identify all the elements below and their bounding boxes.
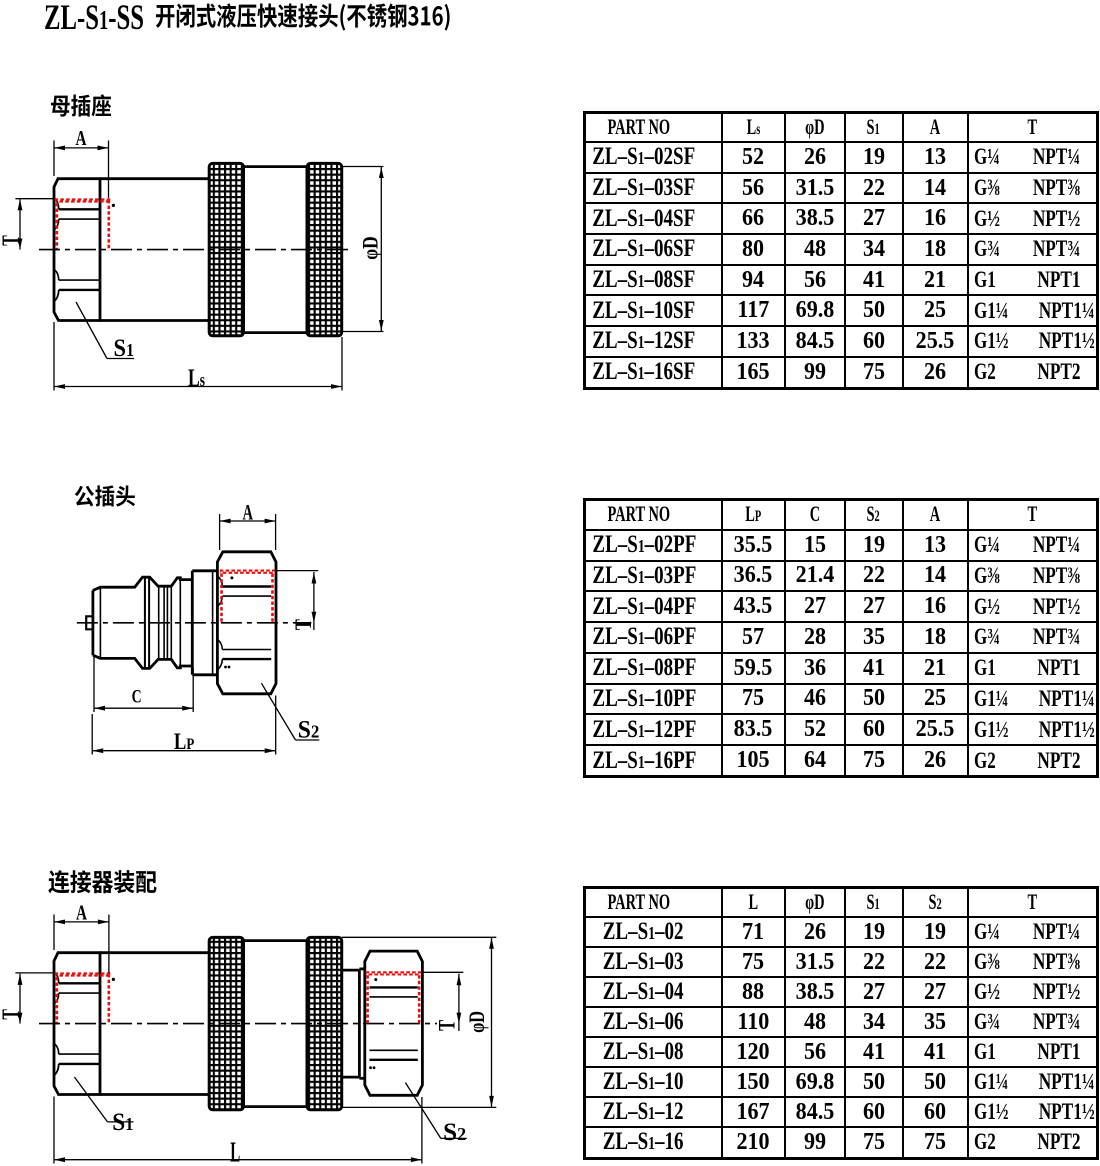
svg-text:A: A: [242, 499, 253, 524]
svg-text:S2: S2: [298, 717, 320, 744]
svg-text:T: T: [435, 1020, 460, 1031]
svg-text:A: A: [76, 126, 88, 150]
svg-text:C: C: [132, 687, 142, 708]
svg-text:L: L: [230, 1138, 240, 1166]
svg-text:Ls: Ls: [188, 365, 205, 392]
svg-text:LP: LP: [174, 729, 195, 754]
svg-text:ZL-S1-SS: ZL-S1-SS: [44, 0, 144, 37]
svg-text:φD: φD: [358, 236, 383, 260]
svg-text:φD: φD: [464, 1011, 489, 1033]
svg-text:T: T: [0, 235, 25, 246]
svg-text:S1: S1: [114, 335, 135, 362]
svg-text:A: A: [76, 901, 88, 925]
svg-text:T: T: [291, 619, 316, 630]
svg-text:T: T: [0, 1009, 25, 1020]
svg-text:S2: S2: [443, 1119, 466, 1146]
svg-text:S1: S1: [112, 1109, 133, 1136]
